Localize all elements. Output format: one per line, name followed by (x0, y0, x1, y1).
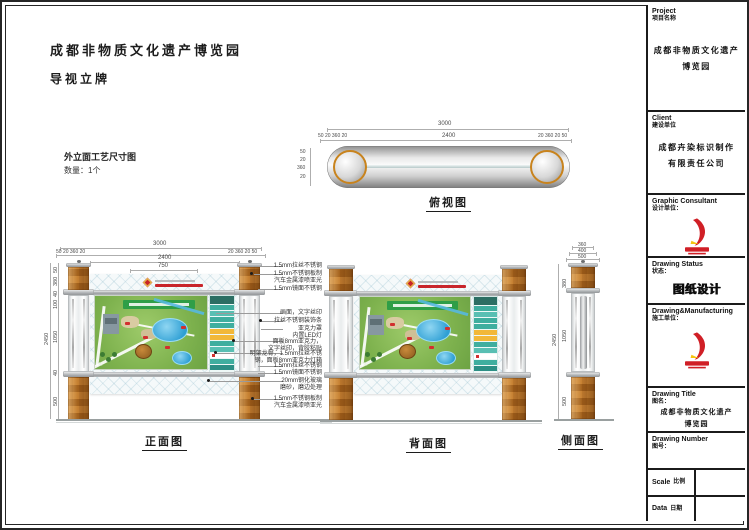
side-ground-line (554, 419, 614, 421)
legend-row (210, 341, 234, 346)
project-value: 成都非物质文化遗产 博览园 (652, 43, 741, 75)
map-building (105, 318, 117, 324)
legend-row (210, 335, 234, 340)
drawing-number-label-zh: 图号： (652, 444, 741, 451)
legend-row (474, 366, 497, 371)
dimension-line (130, 270, 198, 271)
project-label-zh: 项目名称 (652, 16, 741, 23)
topview-dim-inner: 2400 (442, 133, 455, 139)
status-label-zh: 状态： (652, 269, 741, 276)
callout-label: 1.5mm镜面不锈钢 (274, 370, 322, 377)
callout-leader (210, 381, 283, 382)
topview-dim-side-4: 20 (300, 174, 306, 180)
topview-dim-side-3: 360 (297, 165, 305, 171)
legend-row (474, 342, 497, 347)
callout-label: 亚克力罩 内置LED灯 (292, 326, 322, 339)
scale-value-cell (696, 470, 745, 495)
topview-dim-overall: 3000 (438, 121, 451, 127)
map-marker (390, 323, 395, 326)
section-title: 外立面工艺尺寸图 (64, 150, 136, 163)
drawing-title-label-en: Drawing Title (652, 391, 741, 399)
callout-dot (232, 339, 235, 342)
callout-label: 20mm钢化玻璃 磨砂，磨边处理 (280, 378, 322, 391)
front-map-legend (209, 295, 235, 374)
map-plaza (121, 316, 139, 328)
legend-row (210, 305, 234, 310)
callout-label: 1.5mm不锈钢板制 汽车金属漆喷亚光 (274, 271, 322, 284)
titleblock-client-section: Client 建设单位 成都卉染标识制作 有限责任公司 (648, 112, 745, 195)
frontview-dim-total-height: 2450 (44, 333, 50, 345)
legend-row (474, 348, 497, 353)
titleblock-scale-row: Scale 比例 (648, 470, 745, 497)
drawing-sheet: 成都非物质文化遗产博览园 导视立牌 外立面工艺尺寸图 数量：1个 3000 50… (0, 0, 749, 530)
back-ground-line (320, 420, 542, 422)
map-pond (172, 351, 192, 365)
legend-header (210, 296, 234, 304)
dimension-line (310, 148, 311, 186)
topview-dim-right-segs: 20 360 20 50 (538, 133, 567, 139)
backview-label: 背面图 (406, 435, 451, 453)
topview-dim-left-segs: 50 20 360 20 (318, 133, 347, 139)
dimension-line (320, 140, 572, 141)
page-title: 成都非物质文化遗产博览园 (50, 40, 242, 59)
date-value-cell (696, 497, 745, 521)
client-label-en: Client (652, 115, 741, 123)
map-plaza (386, 317, 404, 329)
callout-label: 1.5mm拉丝不锈钢 (274, 263, 322, 270)
legend-header (474, 297, 497, 305)
legend-row (474, 318, 497, 323)
scale-label-zh: 比例 (673, 479, 685, 486)
topview-panel-seam (364, 165, 534, 168)
back-map-legend (473, 296, 498, 374)
sideview-dim-h1: 1050 (562, 330, 568, 342)
map-tree (365, 352, 370, 357)
consultant-logo (652, 216, 741, 261)
manufacturing-label-zh: 施工单位： (652, 316, 741, 323)
client-label-zh: 建设单位 (652, 123, 741, 130)
panel-header-title (155, 284, 203, 287)
callout-label: 画面，文字丝印 (280, 310, 322, 317)
client-value: 成都卉染标识制作 有限责任公司 (652, 140, 741, 172)
status-stamp: 图纸设计 (652, 281, 741, 297)
map-lake (416, 319, 451, 342)
map-marker (181, 326, 186, 329)
titleblock-date-row: Data 日期 (648, 497, 745, 521)
map-marker (429, 346, 434, 349)
manufacturing-label-en: Drawing&Manufacturing (652, 308, 741, 316)
titleblock-manufacturing-section: Drawing&Manufacturing 施工单位： (648, 305, 745, 388)
callout-label: 1.5mm不锈钢板制 汽车金属漆喷亚光 (274, 396, 322, 409)
callout-dot (251, 397, 254, 400)
legend-row (474, 324, 497, 329)
legend-row (210, 365, 234, 370)
front-ground-line (56, 419, 332, 421)
manufacturer-logo (652, 330, 741, 375)
callout-dot (214, 351, 217, 354)
map-marker (407, 337, 412, 340)
quantity-note: 数量：1个 (64, 165, 100, 176)
panel-header-title (418, 285, 466, 288)
legend-row (474, 360, 497, 365)
callout-dot (207, 379, 210, 382)
legend-row (210, 317, 234, 322)
back-ground-shadow (320, 423, 542, 424)
map-tree (106, 357, 111, 362)
project-label-en: Project (652, 8, 741, 16)
side-column-base (571, 377, 595, 419)
map-tree (377, 352, 382, 357)
front-ground-shadow (56, 422, 332, 423)
back-left-column-top (329, 269, 353, 291)
map-tree (371, 357, 376, 362)
date-label-en: Data (652, 505, 667, 513)
back-map-graphic: ✕ (359, 296, 471, 370)
topview-dim-side-2: 20 (300, 157, 306, 163)
map-marker (125, 322, 130, 325)
status-label-en: Drawing Status (652, 261, 741, 269)
frontview-dim-inner: 2400 (158, 255, 171, 261)
page-subtitle: 导视立牌 (50, 70, 110, 87)
drawing-number-label-en: Drawing Number (652, 436, 741, 444)
consultant-label-zh: 设计单位： (652, 206, 741, 213)
callout-label: 1.5mm拉丝不锈钢 (274, 363, 322, 370)
back-right-column-base (502, 378, 526, 420)
sideview-dim-h2: 500 (562, 397, 568, 406)
map-building (370, 319, 382, 325)
sideview-dim-total-height: 2450 (552, 334, 558, 346)
callout-dot (259, 319, 262, 322)
frontview-dim-h0: 50 (53, 267, 59, 273)
front-left-column-glass (68, 295, 89, 372)
legend-row (474, 354, 497, 359)
legend-row (210, 329, 234, 334)
map-tree (112, 352, 117, 357)
frontview-dim-overall: 3000 (153, 241, 166, 247)
sideview-label: 侧面图 (558, 432, 603, 450)
callout-label: 1.5mm镜面不锈钢 (274, 286, 322, 293)
sheet-inner-border (5, 5, 744, 525)
titleblock-drawing-number-section: Drawing Number 图号： (648, 433, 745, 470)
side-column-core (580, 296, 587, 369)
map-dome-building (399, 344, 416, 359)
drawing-title-label-zh: 图名： (652, 399, 741, 406)
title-block: Project 项目名称 成都非物质文化遗产 博览园 Client 建设单位 成… (646, 5, 745, 521)
dimension-line (558, 264, 559, 419)
frontview-dim-h1: 380 (53, 277, 59, 286)
date-label-cell: Data 日期 (648, 497, 696, 521)
scale-label-en: Scale (652, 479, 670, 487)
topview-label: 俯视图 (426, 194, 471, 212)
front-right-column-top (239, 267, 260, 290)
frontview-label: 正面图 (142, 433, 187, 451)
topview-right-column (530, 150, 564, 184)
topview-left-column (333, 150, 367, 184)
frontview-dim-h4: 1050 (53, 331, 59, 343)
frontview-dim-h5: 40 (53, 370, 59, 376)
scale-label-cell: Scale 比例 (648, 470, 696, 495)
callout-leader (261, 329, 283, 330)
callout-label: 拉丝不锈钢装饰条 (274, 318, 322, 325)
drawing-title-value: 成都非物质文化遗产 博览园 (652, 407, 741, 431)
legend-row (210, 323, 234, 328)
consultant-logo-icon (681, 216, 713, 256)
map-marker (143, 336, 148, 339)
back-right-column-glass (502, 296, 526, 373)
titleblock-drawing-title-section: Drawing Title 图名： 成都非物质文化遗产 博览园 (648, 388, 745, 433)
front-left-column-top (68, 267, 89, 290)
consultant-label-en: Graphic Consultant (652, 198, 741, 206)
map-pond (436, 351, 456, 365)
map-building-cluster (103, 314, 119, 334)
manufacturer-logo-icon (681, 330, 713, 370)
map-compass-icon: ✕ (363, 361, 368, 368)
back-left-column-base (329, 378, 353, 420)
map-compass-icon: ✕ (98, 361, 103, 368)
map-lake (152, 318, 188, 342)
titleblock-project-section: Project 项目名称 成都非物质文化遗产 博览园 (648, 5, 745, 112)
titleblock-consultant-section: Graphic Consultant 设计单位： (648, 195, 745, 258)
frontview-dim-h3: 100 (53, 300, 59, 309)
legend-row (474, 330, 497, 335)
map-dome-building (135, 344, 152, 359)
dimension-line (327, 129, 569, 130)
panel-header-subtext (155, 280, 195, 282)
front-map-graphic: ✕ (94, 295, 208, 370)
legend-row (474, 312, 497, 317)
frontview-dim-h6: 500 (53, 397, 59, 406)
legend-row (474, 336, 497, 341)
map-tree (100, 352, 105, 357)
date-label-zh: 日期 (670, 506, 682, 513)
legend-row (474, 306, 497, 311)
titleblock-status-section: Drawing Status 状态： 图纸设计 (648, 258, 745, 305)
legend-row (210, 359, 234, 364)
frontview-dim-header: 750 (158, 263, 168, 269)
back-right-column-top (502, 269, 526, 291)
frontview-dim-h2: 40 (53, 291, 59, 297)
dimension-line (50, 263, 51, 419)
map-marker (165, 346, 170, 349)
side-column-top (571, 267, 595, 288)
map-building-cluster (368, 315, 384, 335)
map-marker (445, 327, 450, 330)
topview-dim-side-1: 50 (300, 149, 306, 155)
callout-dot (250, 272, 253, 275)
sideview-dim-h0: 380 (562, 279, 568, 288)
callout-leader (216, 313, 283, 314)
panel-header-subtext (418, 281, 458, 283)
back-left-column-glass (329, 296, 353, 373)
front-left-column-base (68, 377, 89, 420)
